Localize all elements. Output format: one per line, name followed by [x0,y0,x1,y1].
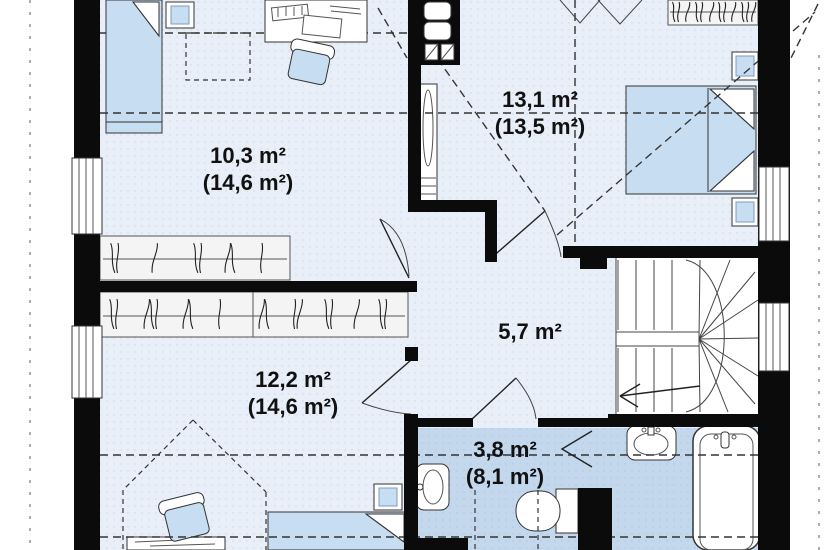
window-right-upper [759,167,789,241]
area-after-finish: 12,2 m² [208,366,378,393]
room-area-label-top-right: 13,1 m² (13,5 m²) [455,86,625,140]
bathtub [693,426,760,550]
area-after-finish: 5,7 m² [445,318,615,345]
room-area-label-hall: 5,7 m² [445,318,615,345]
wardrobe-top-left-room [100,236,290,280]
room-area-label-top-left: 10,3 m² (14,6 m²) [163,142,333,196]
area-total: (8,1 m²) [420,463,590,490]
area-after-finish: 10,3 m² [163,142,333,169]
nightstand [166,2,194,28]
single-bed-bottom-left [268,512,408,550]
staircase-floor [616,258,758,414]
nightstand [732,52,758,80]
area-after-finish: 13,1 m² [455,86,625,113]
window-left-lower [72,326,102,398]
window-left-upper [72,158,102,234]
exterior-wall-right [758,0,790,550]
room-area-label-bathroom: 3,8 m² (8,1 m²) [420,436,590,490]
room-area-label-bottom-left: 12,2 m² (14,6 m²) [208,366,378,420]
double-bed [626,86,756,194]
wardrobe-top-right-room [668,0,758,25]
floorplan-page: 10,3 m² (14,6 m²) 13,1 m² (13,5 m²) 5,7 … [0,0,825,550]
exterior-wall-left [74,0,100,550]
nightstand [374,484,402,510]
desk-top-left [265,0,367,42]
floorplan-drawing [0,0,825,550]
area-total: (14,6 m²) [208,393,378,420]
area-after-finish: 3,8 m² [420,436,590,463]
nightstand [732,198,758,226]
radiator [420,84,437,206]
window-right-lower [759,303,789,371]
toilet [516,489,578,533]
wardrobe-bottom-left-room [100,292,408,337]
area-total: (13,5 m²) [455,113,625,140]
area-total: (14,6 m²) [163,169,333,196]
